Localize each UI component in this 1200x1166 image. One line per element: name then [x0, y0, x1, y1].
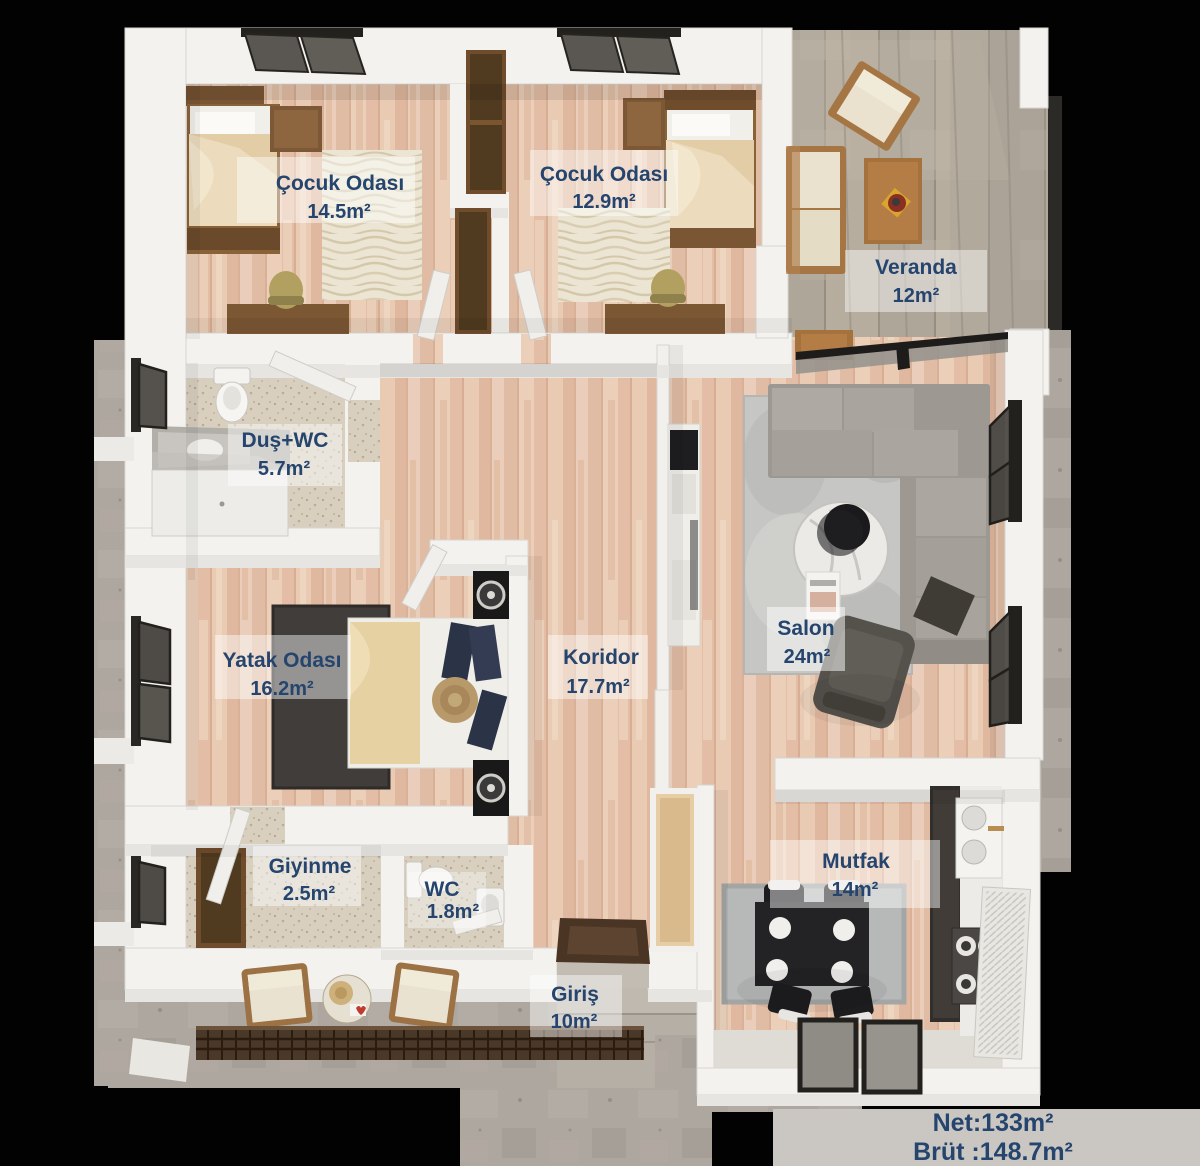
svg-text:17.7m²: 17.7m²	[566, 676, 630, 698]
svg-text:10m²: 10m²	[551, 1011, 598, 1033]
svg-text:Salon: Salon	[777, 617, 834, 640]
svg-text:Giyinme: Giyinme	[269, 855, 352, 878]
svg-text:12.9m²: 12.9m²	[572, 191, 636, 213]
svg-text:24m²: 24m²	[784, 646, 831, 668]
svg-text:Koridor: Koridor	[563, 646, 639, 669]
svg-text:14m²: 14m²	[832, 879, 879, 901]
svg-text:Veranda: Veranda	[875, 256, 957, 279]
svg-text:14.5m²: 14.5m²	[307, 201, 371, 223]
svg-text:Giriş: Giriş	[551, 983, 599, 1006]
svg-text:Duş+WC: Duş+WC	[242, 429, 329, 452]
svg-text:16.2m²: 16.2m²	[250, 678, 314, 700]
svg-text:2.5m²: 2.5m²	[283, 883, 336, 905]
svg-text:Çocuk Odası: Çocuk Odası	[540, 163, 668, 186]
svg-text:Yatak Odası: Yatak Odası	[222, 649, 341, 672]
svg-text:Çocuk Odası: Çocuk Odası	[276, 172, 404, 195]
svg-text:5.7m²: 5.7m²	[258, 458, 311, 480]
svg-text:WC: WC	[425, 878, 460, 901]
svg-text:1.8m²: 1.8m²	[427, 901, 480, 923]
svg-text:Brüt :148.7m²: Brüt :148.7m²	[913, 1138, 1073, 1166]
svg-text:Mutfak: Mutfak	[822, 850, 890, 873]
svg-text:12m²: 12m²	[893, 285, 940, 307]
svg-text:Net:133m²: Net:133m²	[933, 1109, 1054, 1137]
